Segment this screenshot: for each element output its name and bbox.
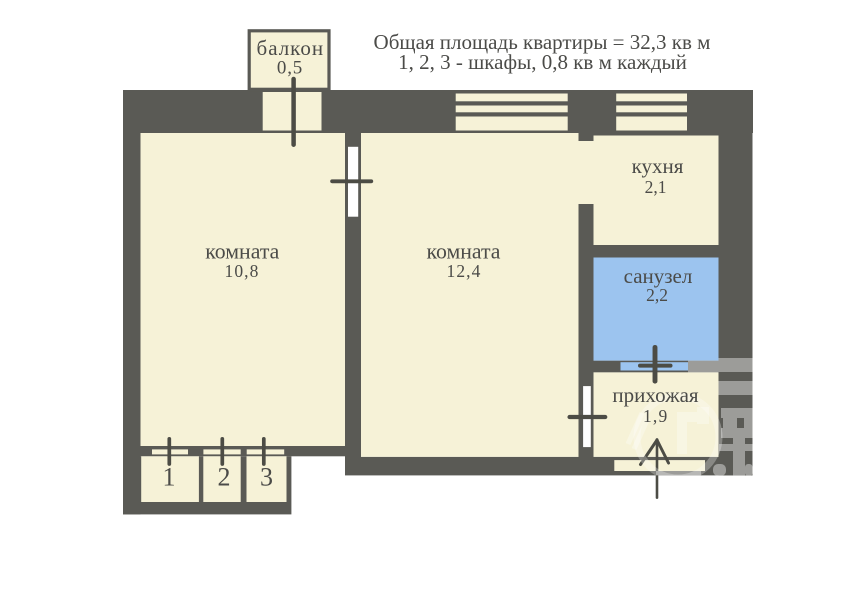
svg-text:2,2: 2,2	[646, 285, 668, 305]
svg-text:балкон: балкон	[257, 36, 325, 60]
svg-text:1, 2, 3 - шкафы, 0,8 кв м кажд: 1, 2, 3 - шкафы, 0,8 кв м каждый	[398, 50, 687, 74]
svg-text:3: 3	[260, 463, 273, 492]
svg-text:кухня: кухня	[632, 154, 684, 178]
svg-text:прихожая: прихожая	[612, 383, 698, 407]
svg-text:10,8: 10,8	[224, 261, 259, 281]
svg-text:1,9: 1,9	[643, 406, 668, 426]
svg-text:1: 1	[163, 463, 176, 492]
svg-text:2: 2	[218, 463, 231, 492]
svg-text:комната: комната	[426, 240, 500, 264]
svg-text:2,1: 2,1	[645, 177, 667, 197]
svg-text:комната: комната	[205, 240, 279, 264]
svg-text:12,4: 12,4	[446, 261, 481, 281]
svg-text:0,5: 0,5	[277, 58, 303, 79]
